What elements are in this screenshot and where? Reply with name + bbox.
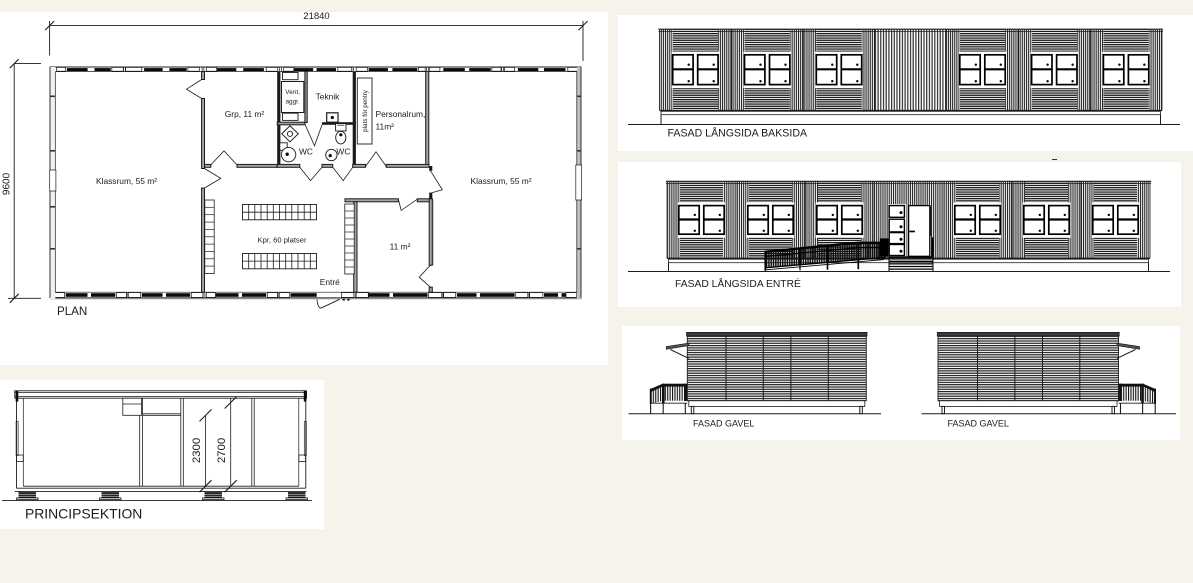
svg-text:Kpr, 60 platser: Kpr, 60 platser <box>258 235 307 244</box>
svg-text:FASAD GAVEL: FASAD GAVEL <box>693 419 754 429</box>
svg-text:2700: 2700 <box>216 438 228 463</box>
svg-text:2300: 2300 <box>191 438 203 463</box>
svg-text:11 m²: 11 m² <box>390 242 411 252</box>
svg-text:11m²: 11m² <box>376 122 395 132</box>
svg-text:Teknik: Teknik <box>316 92 341 102</box>
svg-text:plats för pentry: plats för pentry <box>362 89 369 132</box>
svg-text:PRINCIPSEKTION: PRINCIPSEKTION <box>25 505 142 521</box>
svg-text:WC: WC <box>336 146 350 156</box>
svg-text:Klassrum, 55 m²: Klassrum, 55 m² <box>96 176 157 186</box>
svg-text:PLAN: PLAN <box>57 305 87 318</box>
svg-text:Vent,: Vent, <box>285 89 300 96</box>
svg-text:WC: WC <box>299 146 313 156</box>
svg-text:Personalrum,: Personalrum, <box>376 109 426 119</box>
svg-text:FASAD LÅNGSIDA BAKSIDA: FASAD LÅNGSIDA BAKSIDA <box>668 126 808 139</box>
svg-text:21840: 21840 <box>303 12 329 22</box>
svg-text:Grp, 11 m²: Grp, 11 m² <box>225 109 265 119</box>
svg-text:9600: 9600 <box>2 172 13 195</box>
svg-text:FASAD LÅNGSIDA ENTRÉ: FASAD LÅNGSIDA ENTRÉ <box>675 277 801 290</box>
svg-text:FASAD GAVEL: FASAD GAVEL <box>948 419 1009 429</box>
svg-text:Klassrum, 55 m²: Klassrum, 55 m² <box>471 176 532 186</box>
svg-text:aggr.: aggr. <box>285 98 299 105</box>
svg-text:Entré: Entré <box>320 277 340 287</box>
